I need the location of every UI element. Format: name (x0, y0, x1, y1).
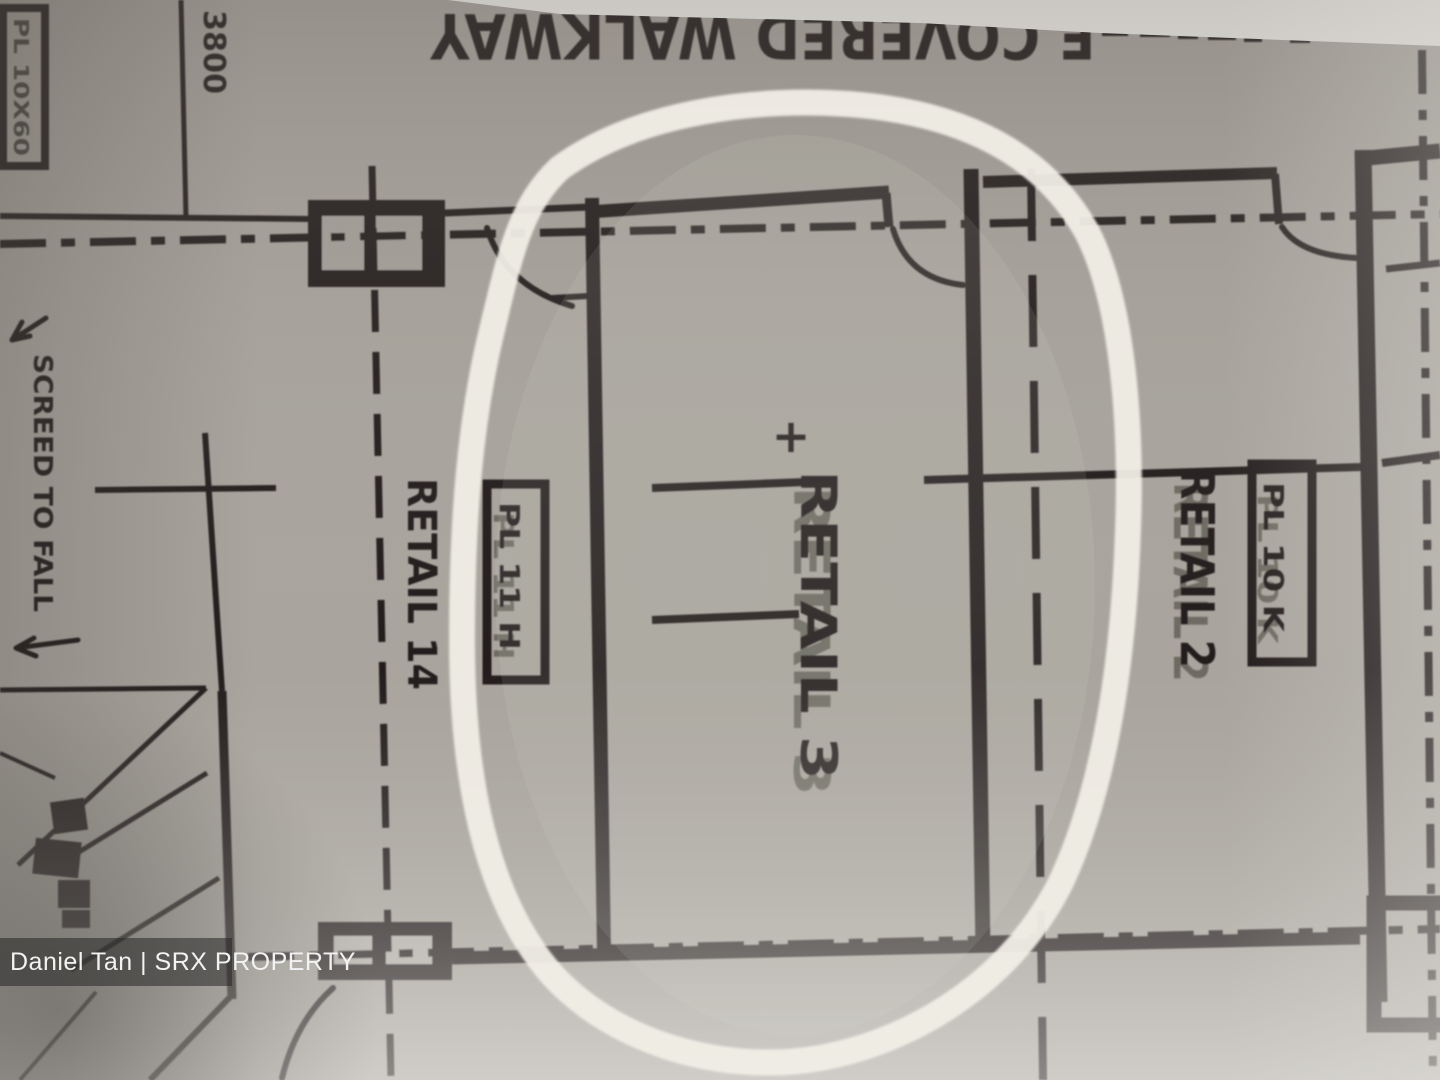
floorplan-drawing: E COVERED WALKWAY 3800 SCREED TO FALL RE… (0, 0, 1440, 1080)
circle-inner-glow (495, 135, 1095, 1035)
floorplan-photo: E COVERED WALKWAY 3800 SCREED TO FALL RE… (0, 0, 1440, 1080)
watermark: Daniel Tan | SRX PROPERTY (0, 938, 232, 986)
